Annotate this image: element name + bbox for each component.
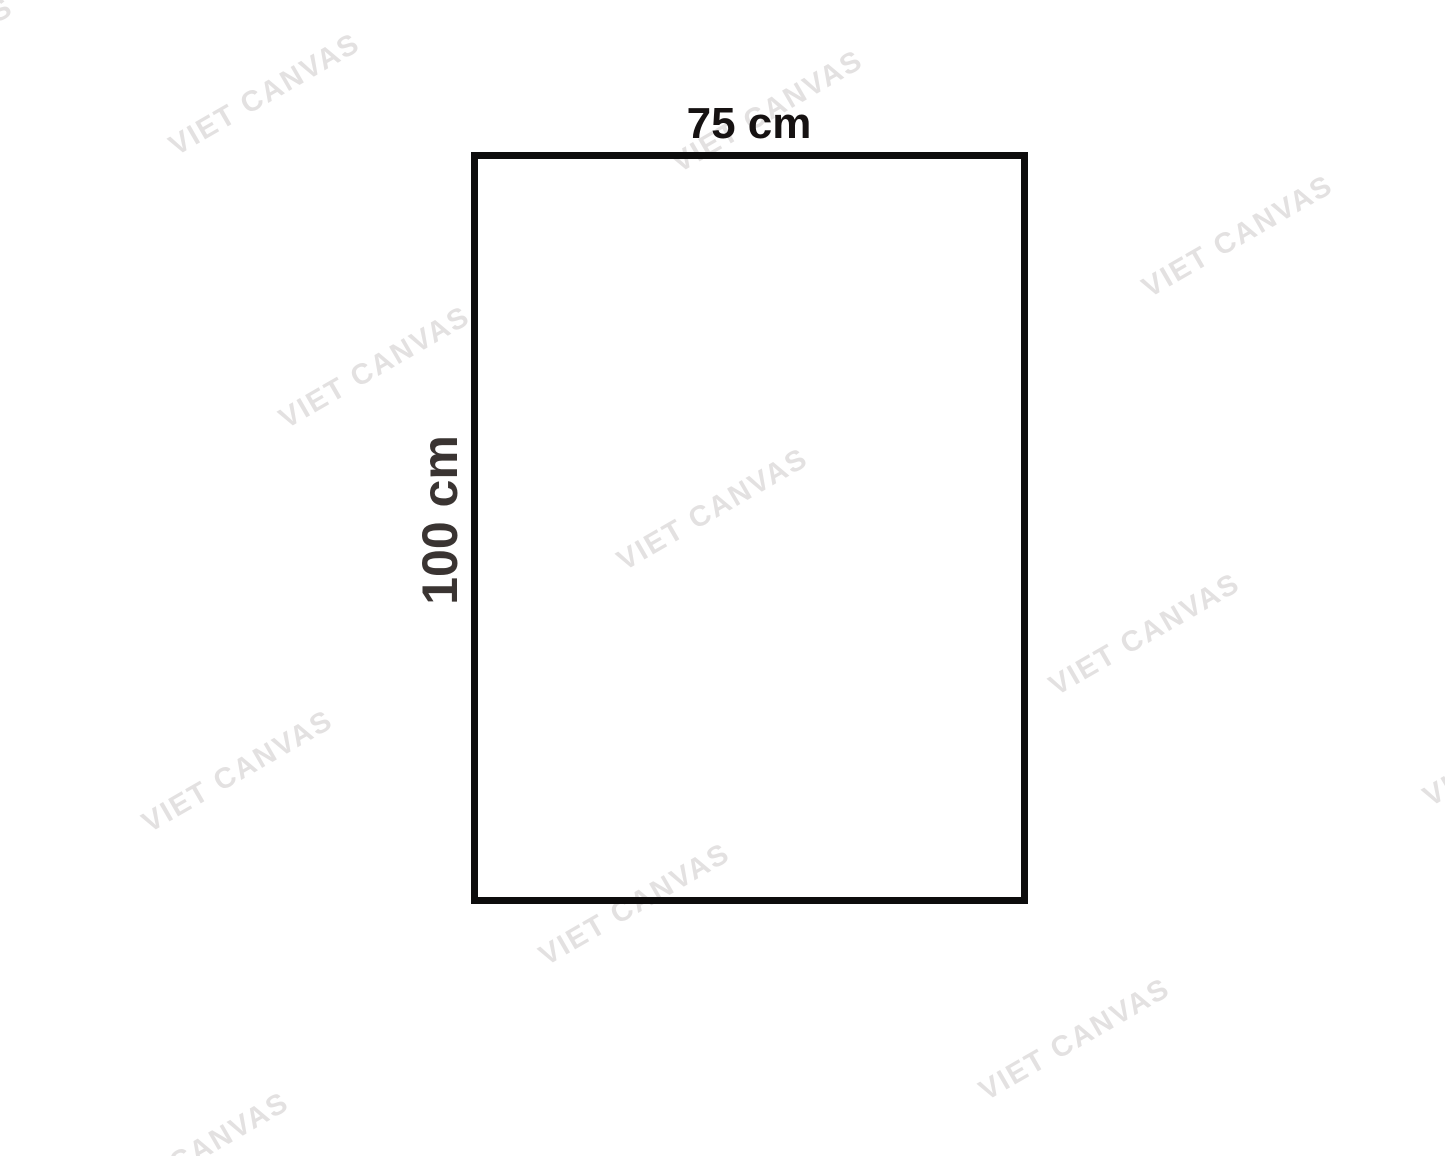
watermark-text: VIET CANVAS (0, 0, 19, 127)
product-frame-rectangle (471, 152, 1028, 904)
watermark-text: VIET CANVAS (164, 27, 367, 163)
height-dimension-label: 100 cm (415, 435, 465, 605)
watermark-text: VIET CANVAS (974, 972, 1177, 1108)
watermark-text: VIET CANVAS (1411, 1124, 1445, 1156)
width-dimension-label: 75 cm (687, 102, 812, 146)
watermark-text: VIET CANVAS (1418, 678, 1445, 814)
canvas: VIET CANVASVIET CANVASVIET CANVASVIET CA… (0, 0, 1445, 1156)
watermark-text: VIET CANVAS (93, 1086, 296, 1156)
watermark-text: VIET CANVAS (1044, 567, 1247, 703)
watermark-text: VIET CANVAS (274, 300, 477, 436)
watermark-text: VIET CANVAS (1137, 169, 1340, 305)
watermark-text: VIET CANVAS (137, 704, 340, 840)
